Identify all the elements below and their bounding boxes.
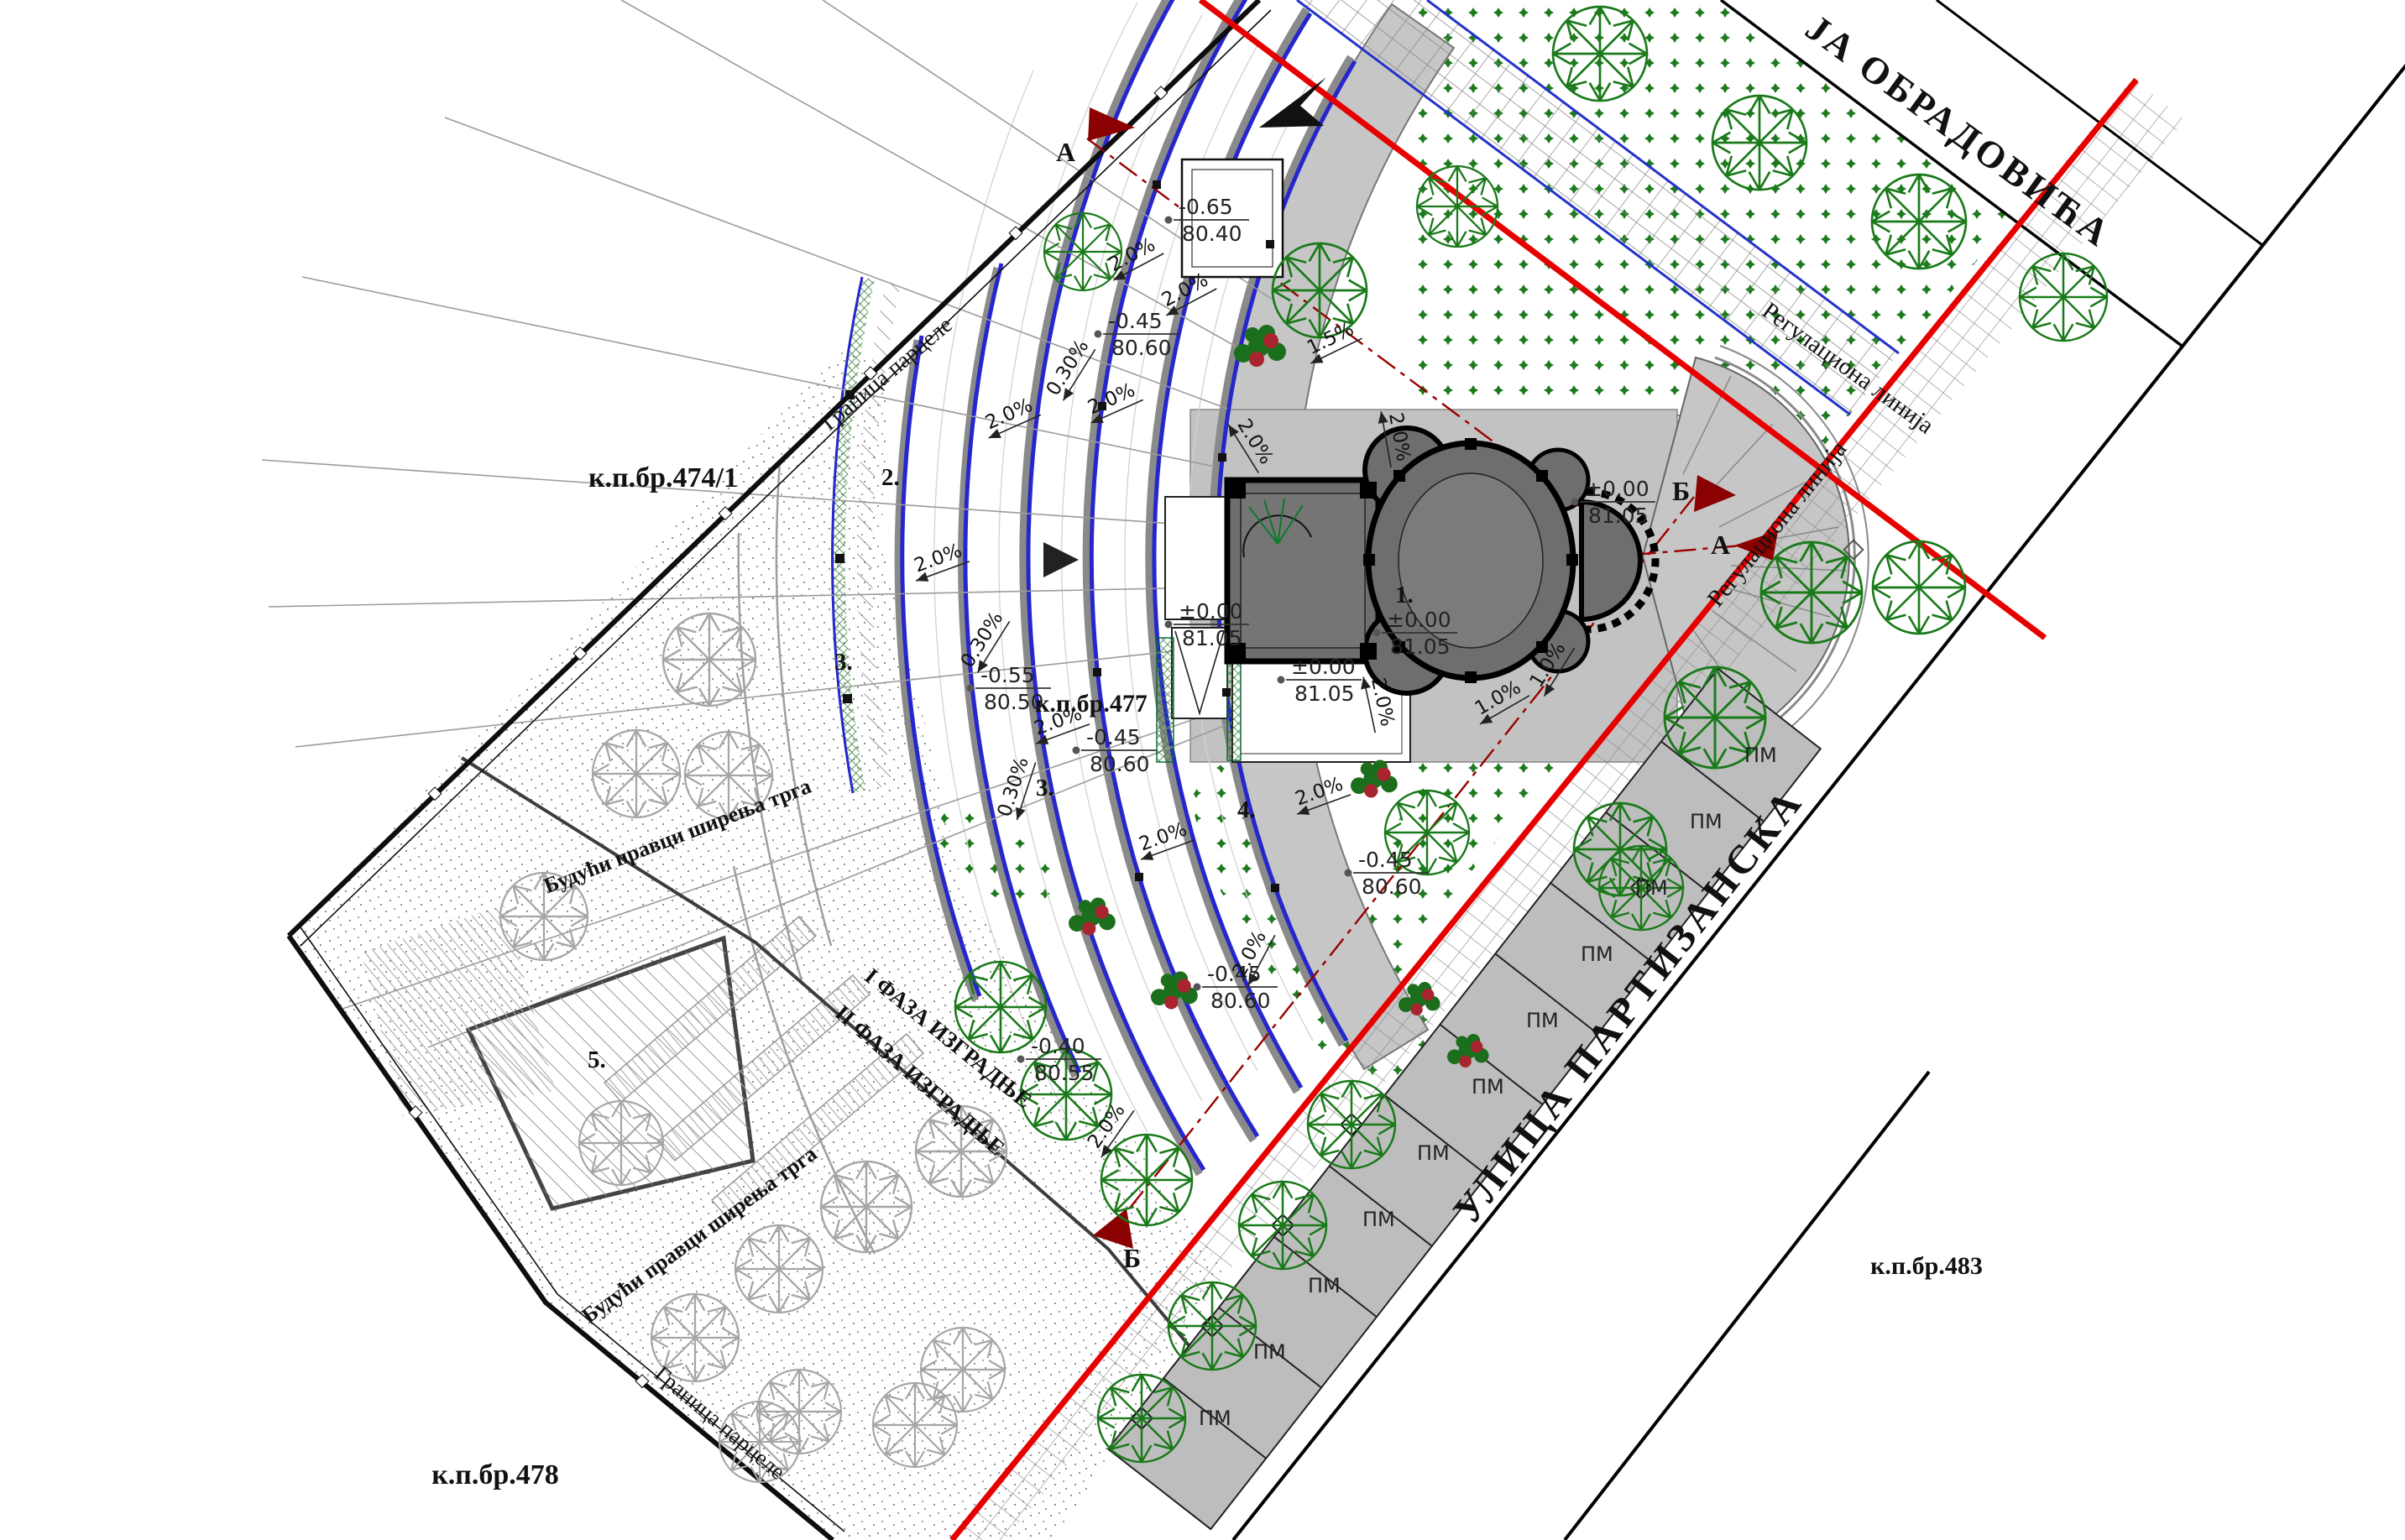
svg-text:80.55: 80.55	[1034, 1061, 1095, 1085]
svg-text:ПМ: ПМ	[1472, 1075, 1504, 1099]
section-letter-a-right: А	[1711, 530, 1730, 560]
svg-text:ПМ: ПМ	[1253, 1340, 1286, 1364]
svg-text:ПМ: ПМ	[1690, 810, 1723, 833]
svg-text:-0.55: -0.55	[980, 663, 1035, 687]
site-plan-canvas: ЈА ОБРАДОВИЋА УЛИЦА ПАРТИЗАНСКА к.п.бр.4…	[0, 0, 2405, 1540]
svg-text:-0.45: -0.45	[1358, 848, 1413, 872]
svg-text:81.05: 81.05	[1390, 634, 1451, 659]
svg-text:±0.00: ±0.00	[1585, 477, 1650, 501]
svg-text:80.60: 80.60	[1362, 874, 1422, 899]
svg-text:ПМ: ПМ	[1308, 1274, 1341, 1297]
area-2: 2.	[881, 464, 900, 491]
svg-text:-0.45: -0.45	[1108, 309, 1163, 333]
svg-text:-0.65: -0.65	[1179, 195, 1233, 219]
area-4: 4.	[1237, 796, 1256, 823]
svg-text:ПМ: ПМ	[1635, 876, 1668, 900]
area-3b: 3.	[1036, 775, 1054, 801]
svg-text:±0.00: ±0.00	[1387, 608, 1451, 632]
svg-text:-0.45: -0.45	[1086, 725, 1141, 749]
area-5: 5.	[588, 1047, 606, 1073]
svg-text:2.0%: 2.0%	[912, 540, 965, 577]
parcel-483: к.п.бр.483	[1870, 1252, 1983, 1280]
svg-text:2.0%: 2.0%	[1085, 379, 1138, 420]
svg-text:ПМ: ПМ	[1199, 1407, 1231, 1430]
entrance-arrow-west	[1043, 542, 1079, 577]
svg-text:±0.00: ±0.00	[1291, 655, 1356, 679]
svg-text:81.05: 81.05	[1182, 626, 1242, 650]
svg-text:-0.40: -0.40	[1031, 1034, 1085, 1058]
svg-text:80.60: 80.60	[1210, 989, 1271, 1013]
narthex-floor	[1241, 493, 1365, 648]
planter-green-south	[1227, 663, 1241, 760]
svg-text:80.60: 80.60	[1090, 752, 1150, 776]
section-letter-b-top: Б	[1672, 476, 1690, 506]
svg-text:80.40: 80.40	[1182, 222, 1242, 246]
svg-text:±0.00: ±0.00	[1179, 599, 1243, 624]
parcel-478: к.п.бр.478	[431, 1459, 559, 1490]
svg-text:80.50: 80.50	[984, 690, 1044, 714]
area-1: 1.	[1395, 582, 1414, 608]
planter-green-west	[1157, 638, 1174, 762]
svg-text:ПМ: ПМ	[1581, 942, 1613, 966]
svg-text:ПМ: ПМ	[1362, 1208, 1395, 1231]
parcel-474-1: к.п.бр.474/1	[588, 462, 738, 493]
svg-text:2.0%: 2.0%	[1137, 818, 1190, 855]
svg-text:ПМ: ПМ	[1526, 1009, 1559, 1032]
area-3a: 3.	[834, 649, 853, 676]
svg-text:ПМ: ПМ	[1744, 744, 1777, 767]
svg-text:81.05: 81.05	[1588, 504, 1649, 528]
section-letter-a-top: А	[1056, 137, 1075, 167]
section-letter-b-bottom: Б	[1123, 1243, 1141, 1273]
svg-text:80.60: 80.60	[1111, 336, 1172, 360]
svg-text:ПМ: ПМ	[1417, 1141, 1450, 1165]
svg-text:81.05: 81.05	[1294, 681, 1355, 706]
